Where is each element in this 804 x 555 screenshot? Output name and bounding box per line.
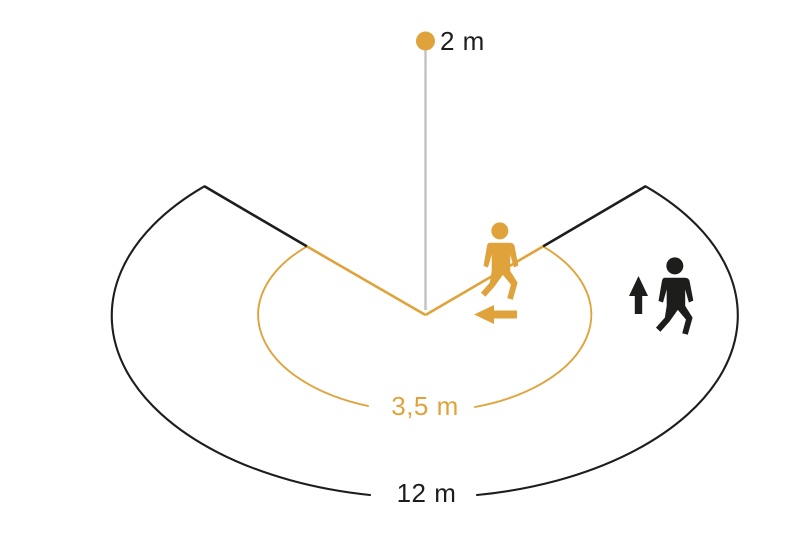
inner-zone-arc-left — [258, 246, 368, 406]
walking-person-icon — [481, 222, 518, 299]
sensor-dot-icon — [416, 32, 435, 51]
arrow-left-icon — [474, 305, 517, 324]
inner-zone-label: 3,5 m — [391, 391, 459, 421]
wedge-edge-right-inner — [426, 246, 544, 315]
wedge-edge-right-outer — [543, 186, 646, 246]
outer-zone-arc-right — [477, 186, 738, 495]
walking-person-icon-dark — [656, 257, 693, 334]
diagram-svg: 2 m 3,5 m 12 m — [0, 0, 804, 555]
outer-zone-arc-left — [112, 186, 370, 495]
detection-range-diagram: 2 m 3,5 m 12 m — [0, 0, 804, 555]
arrow-up-icon — [629, 276, 648, 314]
wedge-edge-left-outer — [204, 186, 307, 246]
outer-zone-label: 12 m — [397, 478, 457, 508]
wedge-edge-left-inner — [307, 246, 426, 315]
sensor-height-label: 2 m — [440, 26, 485, 56]
